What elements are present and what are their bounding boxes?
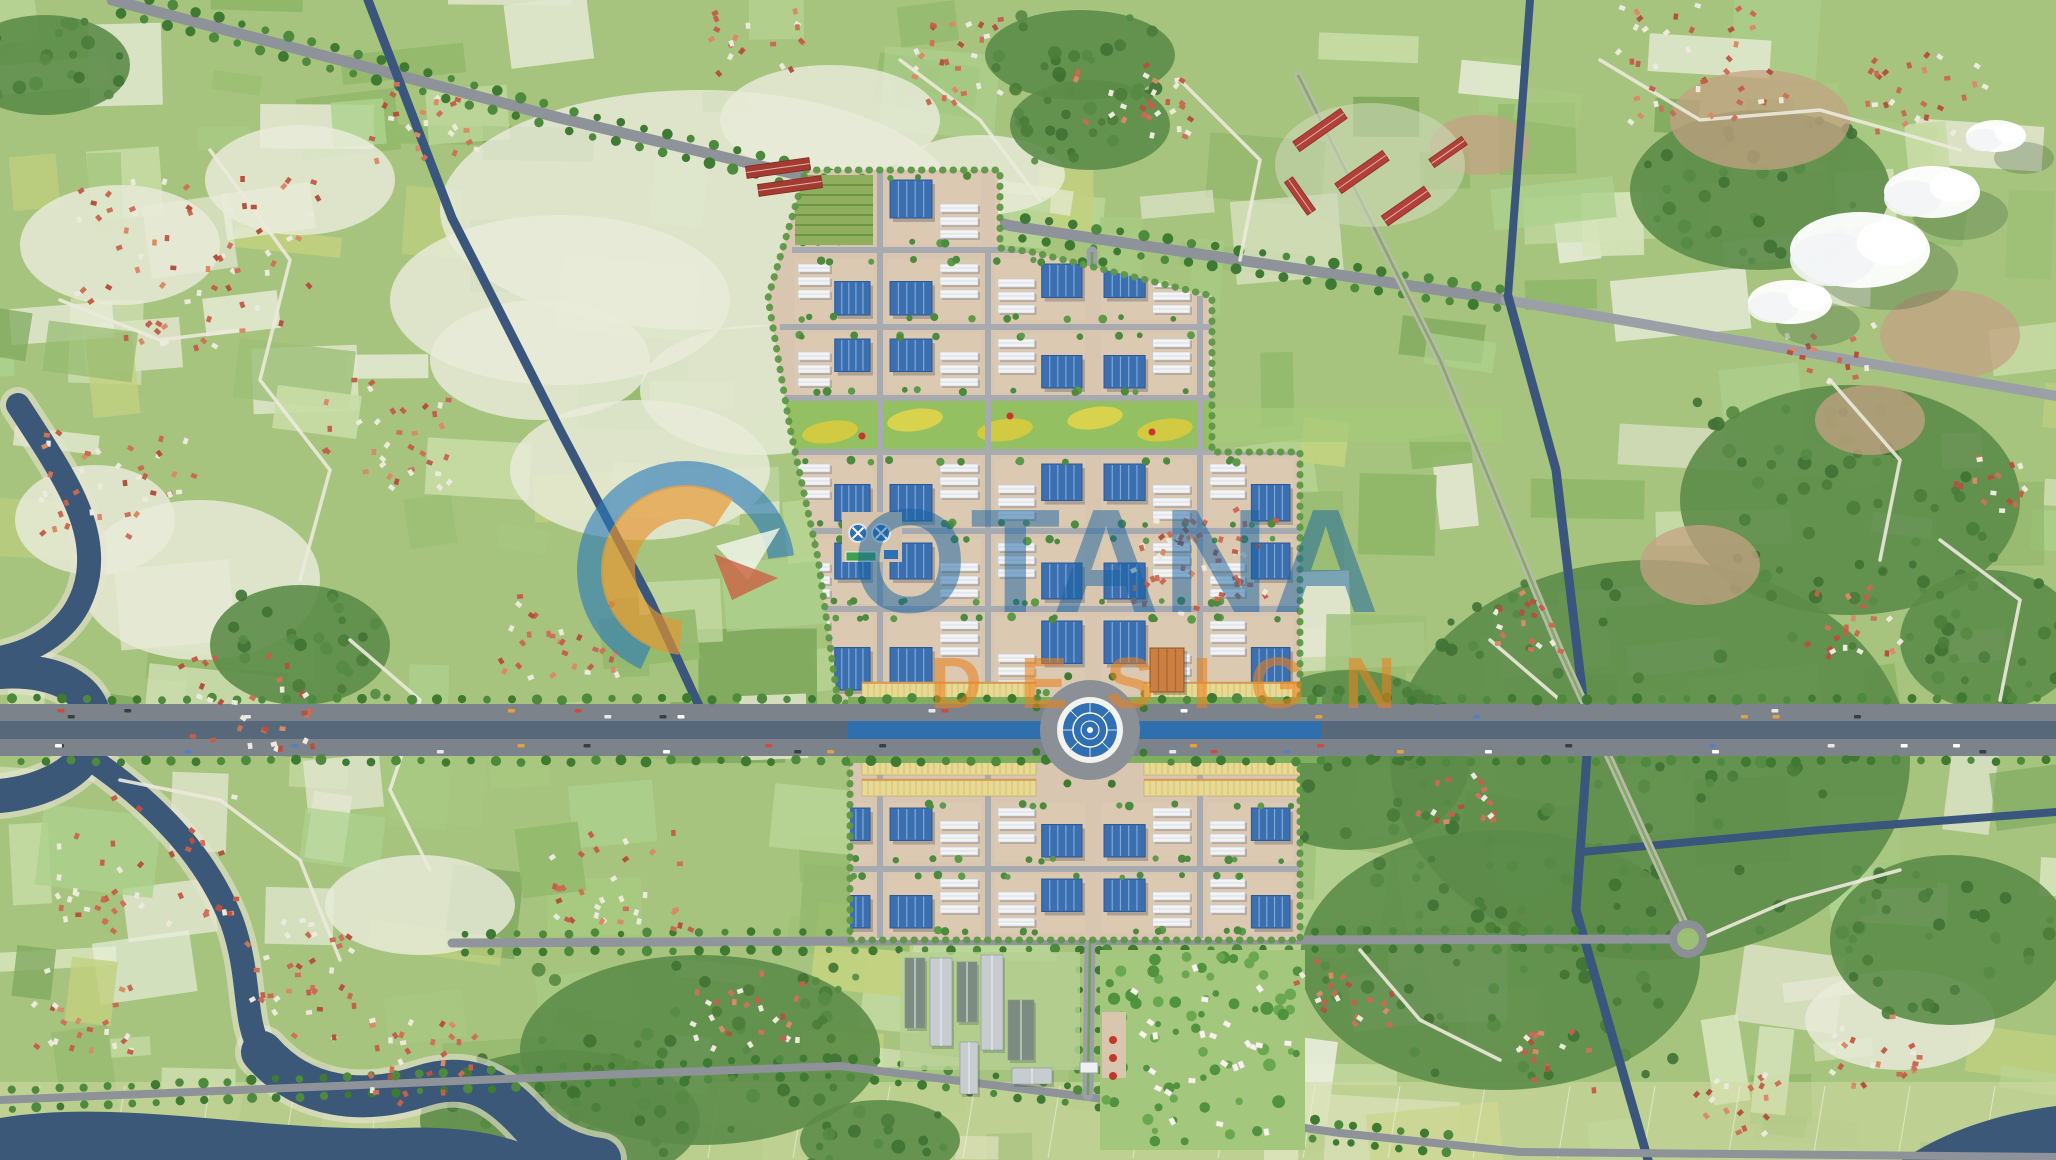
factory-lot bbox=[1099, 535, 1193, 605]
boulevard-south-carriageway bbox=[0, 739, 2056, 756]
factory-lot bbox=[887, 256, 981, 323]
factory-lot bbox=[1101, 331, 1195, 395]
vehicle bbox=[879, 744, 886, 748]
vehicle bbox=[1283, 750, 1290, 754]
vehicle bbox=[185, 750, 192, 754]
vehicle bbox=[291, 744, 298, 748]
factory-lot bbox=[795, 331, 873, 396]
factory-lot bbox=[995, 535, 1085, 607]
vehicle bbox=[1473, 715, 1480, 719]
factory-lot bbox=[995, 457, 1085, 529]
factory-lot bbox=[887, 871, 981, 936]
vehicle bbox=[1565, 744, 1572, 748]
vehicle bbox=[765, 744, 772, 748]
vehicle bbox=[1315, 715, 1322, 719]
vehicle bbox=[55, 744, 62, 748]
vehicle bbox=[941, 709, 948, 713]
vehicle bbox=[1771, 709, 1778, 713]
cottage bbox=[1263, 1128, 1269, 1136]
vehicle bbox=[1709, 744, 1716, 748]
vehicle bbox=[1828, 744, 1835, 748]
vehicle bbox=[575, 709, 582, 713]
cottage bbox=[1201, 996, 1209, 1002]
boulevard-median bbox=[848, 721, 1042, 739]
factory-lot bbox=[887, 172, 981, 248]
factory-lot bbox=[995, 872, 1085, 935]
vehicle bbox=[508, 709, 515, 713]
vehicle bbox=[660, 715, 667, 719]
vehicle bbox=[677, 715, 684, 719]
satellite-masterplan-image bbox=[0, 0, 2056, 1160]
factory-lot bbox=[1101, 457, 1193, 528]
boulevard-median bbox=[1322, 721, 2056, 739]
vehicle bbox=[1712, 750, 1719, 754]
cottage bbox=[1284, 1040, 1291, 1046]
factory-lot bbox=[1207, 803, 1294, 865]
factory-lot bbox=[995, 800, 1085, 864]
vehicle bbox=[1211, 750, 1218, 754]
vehicle bbox=[1901, 744, 1908, 748]
factory-lot bbox=[1101, 872, 1193, 935]
factory-lot bbox=[995, 333, 1085, 396]
factory-lot bbox=[887, 800, 981, 864]
shophouse-row bbox=[862, 779, 1036, 796]
vehicle bbox=[1854, 715, 1861, 719]
vehicle bbox=[1485, 750, 1492, 754]
factory-lot bbox=[795, 257, 874, 323]
wwtp bbox=[842, 512, 902, 562]
boulevard-median bbox=[1138, 721, 1322, 739]
vehicle bbox=[827, 750, 834, 754]
boulevard-median bbox=[0, 721, 848, 739]
vehicle bbox=[1181, 709, 1188, 713]
vehicle bbox=[1741, 715, 1748, 719]
vehicle bbox=[1979, 750, 1986, 754]
vehicle bbox=[584, 744, 591, 748]
vehicle bbox=[1397, 750, 1404, 754]
vehicle bbox=[57, 709, 64, 713]
factory-lot bbox=[887, 332, 981, 397]
vehicle bbox=[663, 750, 670, 754]
cottage bbox=[1255, 1042, 1263, 1048]
vehicle bbox=[604, 715, 611, 719]
vehicle bbox=[1190, 744, 1197, 748]
vehicle bbox=[794, 750, 801, 754]
factory-lot bbox=[993, 257, 1085, 323]
vehicle bbox=[1169, 750, 1176, 754]
vehicle bbox=[68, 715, 75, 719]
masterplan-render: OTANA DESIGN bbox=[0, 0, 2056, 1160]
entrance-gate bbox=[1080, 1062, 1098, 1073]
factory-lot bbox=[1207, 456, 1293, 528]
vehicle bbox=[1317, 744, 1324, 748]
vehicle bbox=[1773, 715, 1780, 719]
cottage bbox=[1188, 1078, 1195, 1083]
factory-lot bbox=[1101, 801, 1193, 863]
vehicle bbox=[124, 709, 131, 713]
vehicle bbox=[437, 750, 444, 754]
vehicle bbox=[518, 744, 525, 748]
vehicle bbox=[1953, 744, 1960, 748]
shophouse-row bbox=[1144, 779, 1318, 796]
factory-lot bbox=[1207, 872, 1293, 936]
vehicle bbox=[928, 709, 935, 713]
cottage bbox=[1152, 1032, 1158, 1040]
